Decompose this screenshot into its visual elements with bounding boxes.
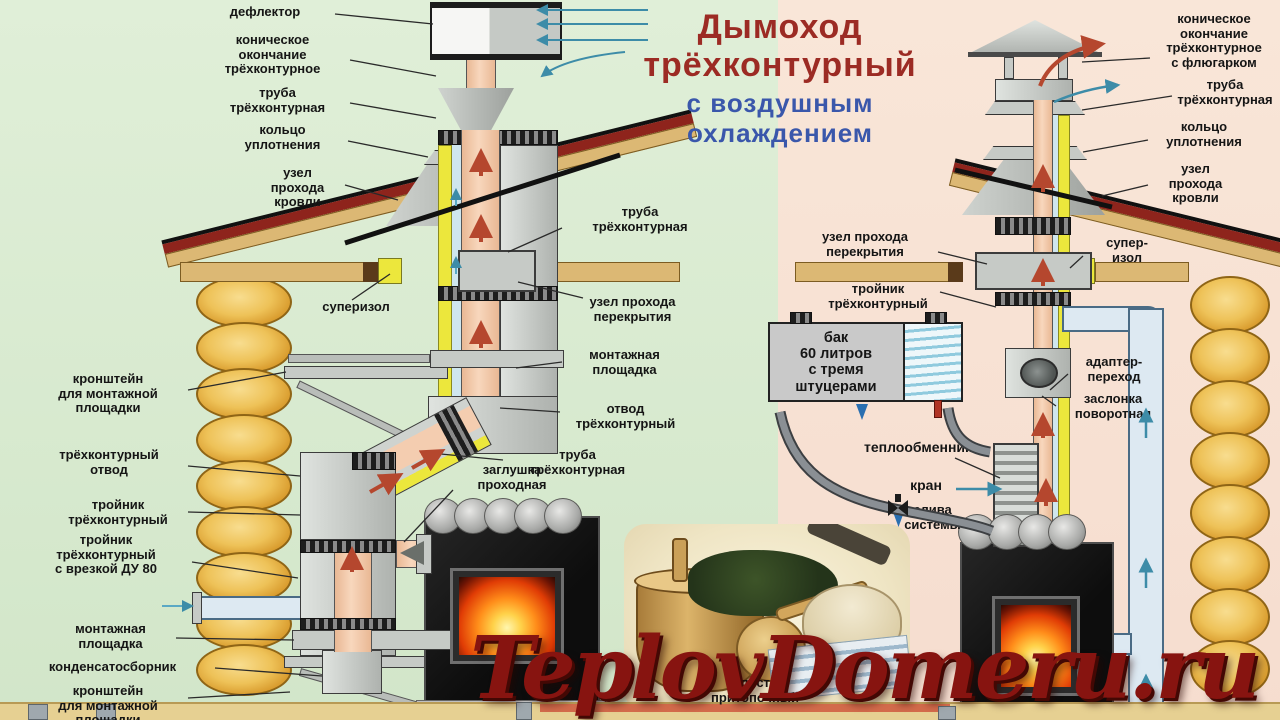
mount-rod bbox=[288, 354, 430, 363]
title-line-1: Дымоход bbox=[600, 8, 960, 47]
tank-water-gauge bbox=[903, 324, 961, 400]
bracket-bar-upper bbox=[284, 366, 448, 379]
label-floor-pass-left: узел прохода перекрытия bbox=[555, 295, 710, 324]
label-tap: кран bbox=[900, 478, 952, 494]
log-wall-left bbox=[196, 282, 292, 716]
stove-right-stones bbox=[966, 514, 1086, 550]
label-pipe-left-mid: труба трёхконтурная bbox=[565, 205, 715, 234]
label-elbow-left: трёхконтурный отвод bbox=[30, 448, 188, 477]
cap-collar bbox=[995, 79, 1073, 101]
label-heat-exchanger: теплообменник bbox=[838, 440, 998, 456]
ceiling-beam-left-a bbox=[180, 262, 378, 282]
label-roof-pass-right: узел прохода кровли bbox=[1148, 162, 1243, 206]
title-line-3: с воздушным bbox=[600, 88, 960, 119]
label-drain: слива системы bbox=[885, 503, 980, 532]
chimney-diagram: Дымоход трёхконтурный с воздушным охлажд… bbox=[0, 0, 1280, 720]
label-conic-end-left: коническое окончание трёхконтурное bbox=[195, 33, 350, 77]
stove-left-stones bbox=[432, 498, 582, 534]
label-roof-pass-left: узел прохода кровли bbox=[245, 166, 350, 210]
label-conic-end-right: коническое окончание трёхконтурное с флю… bbox=[1150, 12, 1278, 70]
label-pipe-right-top: труба трёхконтурная bbox=[1170, 78, 1280, 107]
bucket-handle bbox=[672, 538, 688, 582]
label-damper: заслонка поворотная bbox=[1052, 392, 1174, 421]
elbow-joint-left bbox=[352, 452, 396, 470]
tank-fitting-b bbox=[925, 312, 947, 324]
tee-joint-2 bbox=[300, 618, 396, 630]
mount-pad-lower bbox=[292, 630, 458, 650]
cap-post-a bbox=[1004, 57, 1014, 79]
label-tee-right: тройник трёхконтурный bbox=[812, 282, 944, 311]
title-line-2: трёхконтурный bbox=[600, 46, 960, 85]
condensate-collector bbox=[322, 650, 382, 694]
du80-cap bbox=[192, 592, 202, 624]
label-adapter: адаптер- переход bbox=[1066, 355, 1162, 384]
floor-pass-flange-right bbox=[975, 252, 1092, 290]
tank-fitting-a bbox=[790, 312, 812, 324]
label-tank: бак 60 литров с тремя штуцерами bbox=[772, 330, 900, 395]
label-elbow-mid: отвод трёхконтурный bbox=[548, 402, 703, 431]
label-tee-left: тройник трёхконтурный bbox=[48, 498, 188, 527]
tank-tap-lever bbox=[934, 400, 942, 418]
tee-joint-1 bbox=[300, 540, 396, 553]
pipe-joint-right-1 bbox=[995, 217, 1071, 235]
ceiling-beam-right-a bbox=[795, 262, 963, 282]
label-floor-pass-right: узел прохода перекрытия bbox=[790, 230, 940, 259]
label-deflector: дефлектор bbox=[195, 5, 335, 20]
flue-cap-rim bbox=[968, 52, 1102, 57]
ceiling-block-right bbox=[948, 262, 963, 282]
label-mount-pad-mid: монтажная площадка bbox=[562, 348, 687, 377]
plug-flange bbox=[416, 534, 432, 574]
deflector bbox=[430, 2, 562, 60]
label-pipe-left-top: труба трёхконтурная bbox=[205, 86, 350, 115]
ceiling-block-left bbox=[363, 262, 378, 282]
label-plug: заглушка проходная bbox=[448, 463, 576, 492]
site-watermark: TeplovDomeru.ru bbox=[470, 618, 1260, 719]
label-superizol-right: супер- изол bbox=[1082, 236, 1172, 265]
superizol-block-left bbox=[378, 258, 402, 284]
tee-core-left bbox=[334, 553, 372, 652]
deflector-neck bbox=[466, 60, 496, 88]
rotary-damper bbox=[1020, 358, 1058, 388]
label-ring-right: кольцо уплотнения bbox=[1143, 120, 1265, 149]
floor-pass-flange-left bbox=[458, 250, 536, 292]
label-bracket-top: кронштейн для монтажной площадки bbox=[28, 372, 188, 416]
label-superizol-left: суперизол bbox=[297, 300, 415, 315]
whisk-handle bbox=[806, 524, 893, 567]
mount-pad-upper bbox=[430, 350, 564, 368]
label-condensate: конденсатосборник bbox=[10, 660, 215, 675]
label-tee-du80: тройник трёхконтурный с врезкой ДУ 80 bbox=[20, 533, 192, 577]
label-ring-left: кольцо уплотнения bbox=[215, 123, 350, 152]
pipe-joint-right-2 bbox=[995, 292, 1071, 306]
du80-air-inlet bbox=[198, 596, 312, 620]
label-bracket-bottom: кронштейн для монтажной площадки bbox=[28, 684, 188, 720]
title-line-4: охлаждением bbox=[600, 118, 960, 149]
cap-post-b bbox=[1058, 57, 1068, 79]
label-mount-pad-bottom: монтажная площадка bbox=[48, 622, 173, 651]
